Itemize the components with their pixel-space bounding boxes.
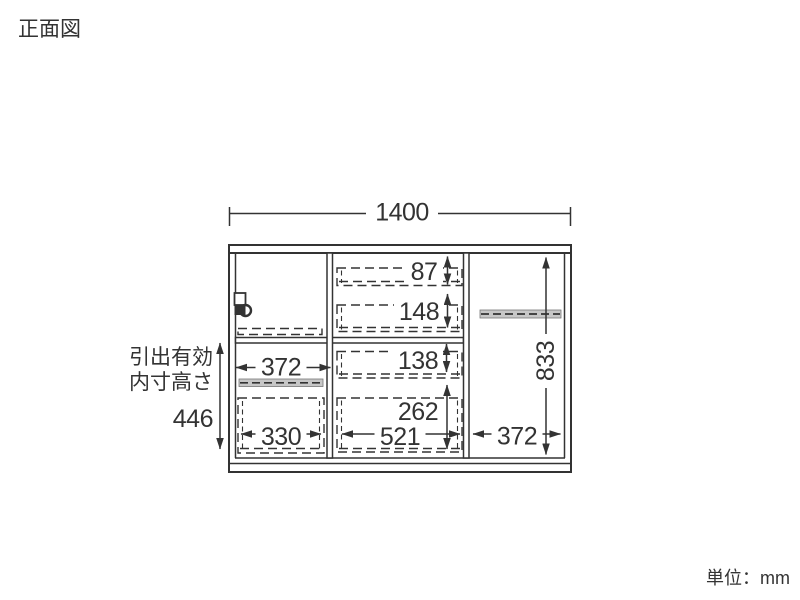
drawer3-height-label: 138 xyxy=(398,347,438,375)
right-compartment xyxy=(480,310,561,318)
page-title: 正面図 xyxy=(18,18,81,41)
front-view-diagram: 1400 87 148 138 262 521 330 372 372 833 … xyxy=(0,0,800,600)
drawer4-height-label: 262 xyxy=(398,398,438,426)
diagram-canvas: 1400 87 148 138 262 521 330 372 372 833 … xyxy=(0,0,800,600)
vertical-divider-right xyxy=(464,253,470,458)
cabinet-top-panel xyxy=(229,245,571,253)
total-height-label: 833 xyxy=(532,341,560,381)
drawer-note-line1: 引出有効 xyxy=(129,346,213,369)
vertical-divider-left xyxy=(327,253,333,458)
drawer1-height-label: 87 xyxy=(411,258,438,286)
left-drawer-width-label: 330 xyxy=(261,423,301,451)
left-section-width-label: 372 xyxy=(261,354,301,382)
total-width-label: 1400 xyxy=(375,199,429,227)
drawer4-width-label: 521 xyxy=(380,423,420,451)
unit-note: 単位：mm xyxy=(706,568,790,588)
drawer2-height-label: 148 xyxy=(399,298,439,326)
horizontal-divider xyxy=(236,338,464,344)
right-section-width-label: 372 xyxy=(497,423,537,451)
lock-plate xyxy=(235,293,246,305)
drawer-note-value: 446 xyxy=(173,405,213,433)
drawer-note-line2: 内寸高さ xyxy=(129,371,213,394)
